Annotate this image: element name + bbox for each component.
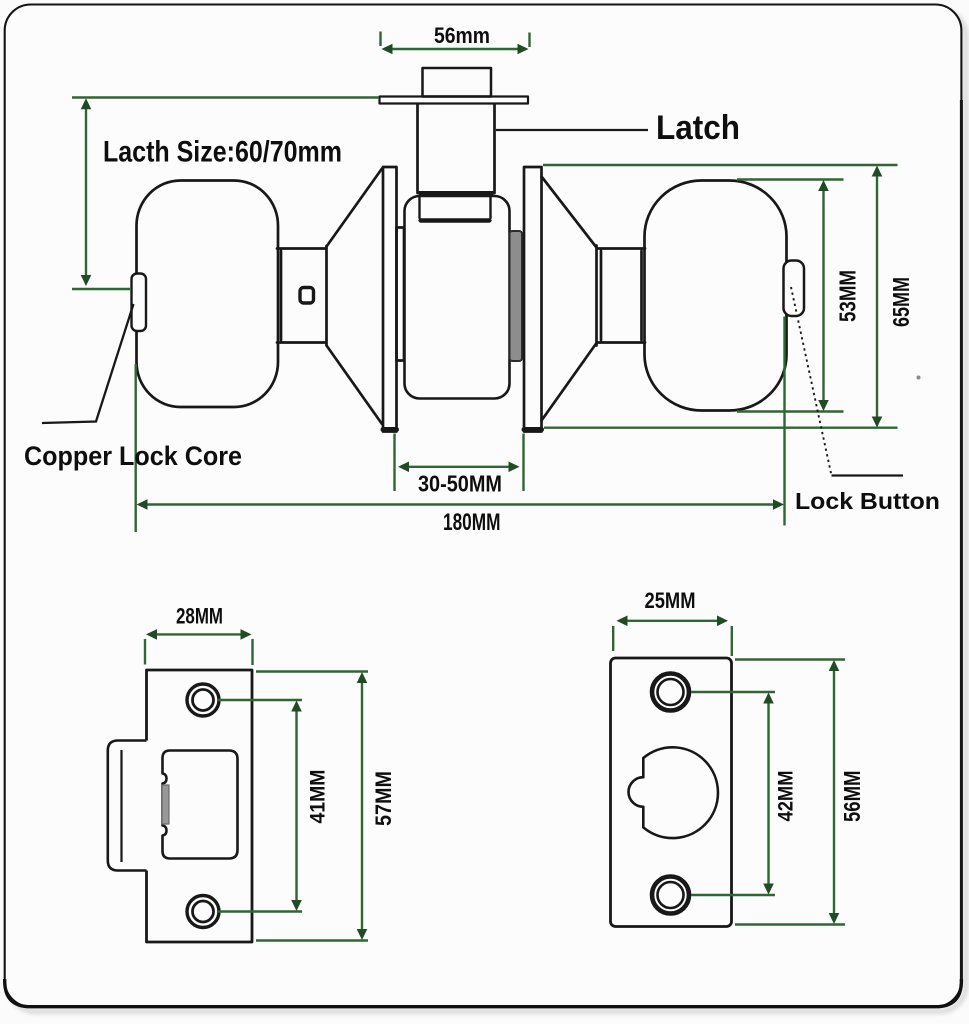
svg-text:56MM: 56MM xyxy=(839,771,865,823)
svg-text:25MM: 25MM xyxy=(645,588,696,613)
svg-text:Lacth Size:60/70mm: Lacth Size:60/70mm xyxy=(103,136,342,169)
svg-text:57MM: 57MM xyxy=(371,771,396,826)
svg-text:42MM: 42MM xyxy=(775,771,798,822)
svg-text:Latch: Latch xyxy=(656,109,740,147)
svg-text:65MM: 65MM xyxy=(888,277,914,327)
svg-text:53MM: 53MM xyxy=(835,270,861,322)
svg-text:Copper Lock Core: Copper Lock Core xyxy=(24,441,242,471)
svg-text:28MM: 28MM xyxy=(176,604,223,629)
svg-text:Lock Button: Lock Button xyxy=(795,488,940,514)
svg-text:56mm: 56mm xyxy=(434,23,490,48)
svg-text:180MM: 180MM xyxy=(443,509,501,536)
svg-text:41MM: 41MM xyxy=(307,770,330,824)
svg-text:30-50MM: 30-50MM xyxy=(418,471,502,497)
